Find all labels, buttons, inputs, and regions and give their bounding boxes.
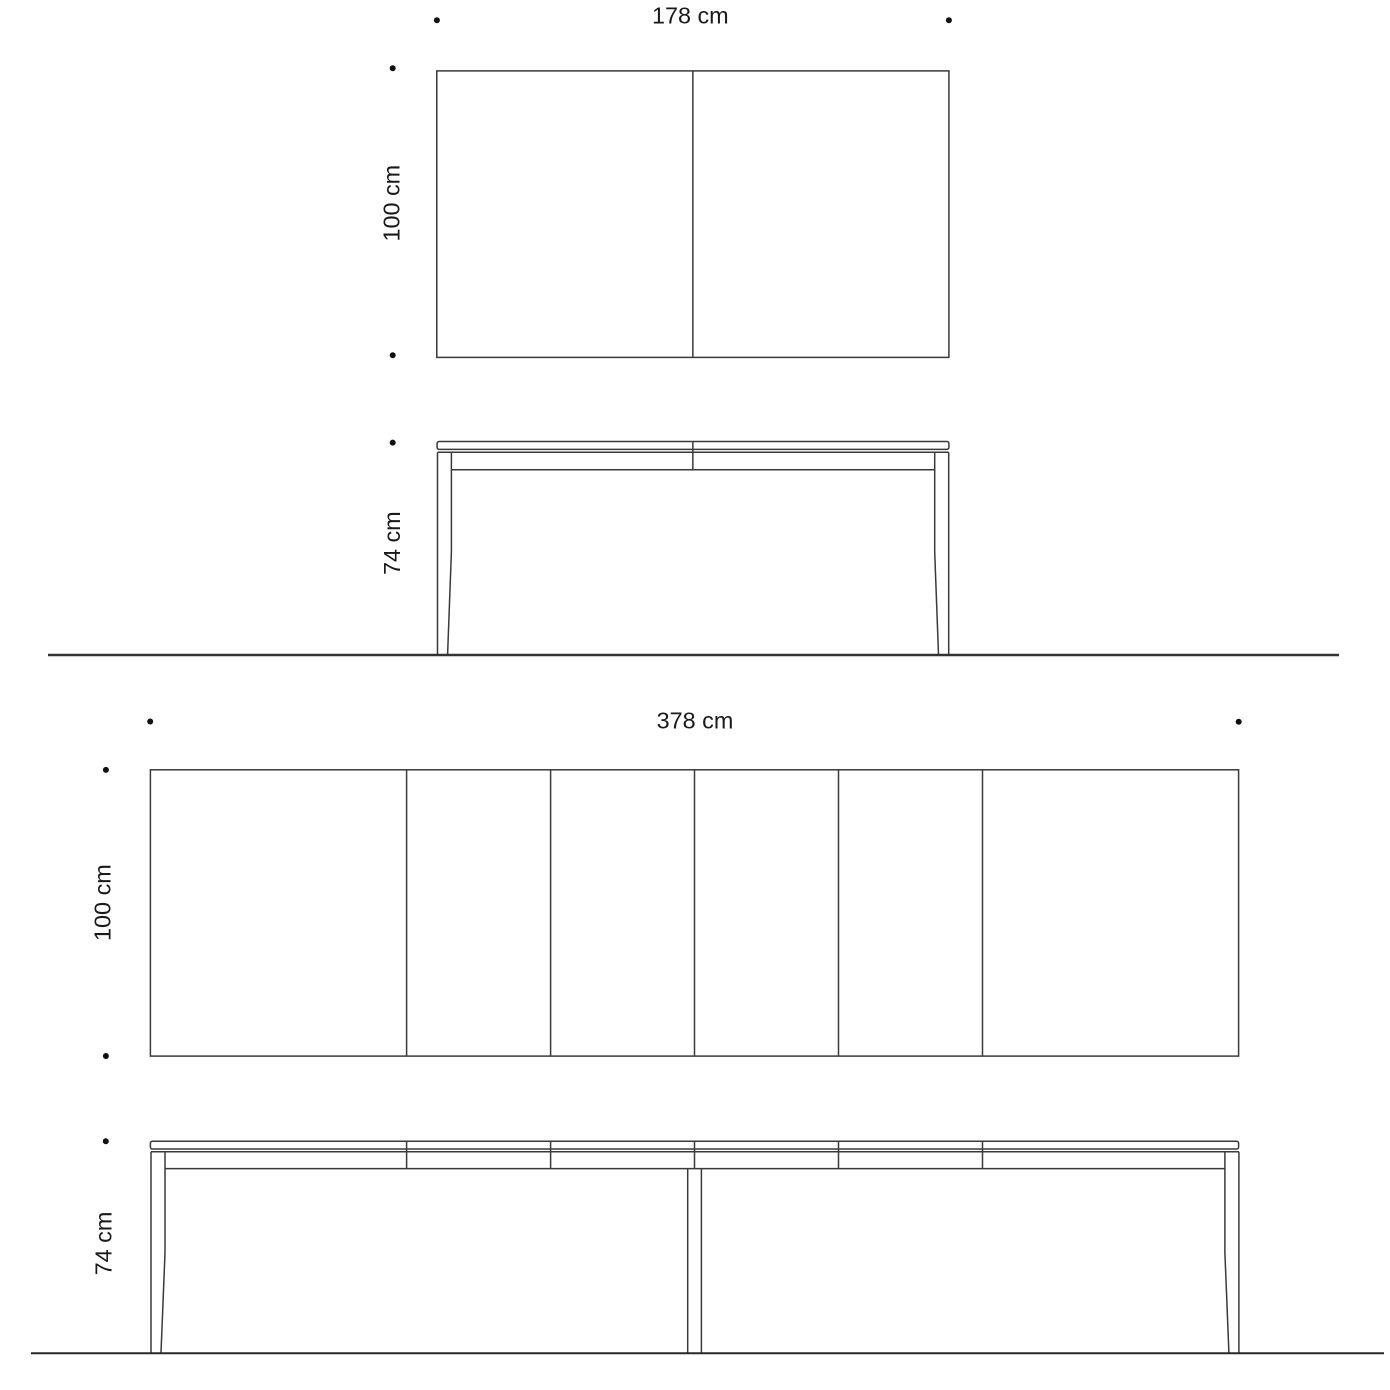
svg-text:100 cm: 100 cm — [90, 864, 116, 941]
svg-text:74 cm: 74 cm — [91, 1212, 117, 1276]
svg-text:74 cm: 74 cm — [379, 511, 405, 575]
svg-text:178 cm: 178 cm — [652, 2, 729, 28]
svg-text:378 cm: 378 cm — [657, 708, 734, 734]
svg-text:100 cm: 100 cm — [379, 165, 405, 242]
